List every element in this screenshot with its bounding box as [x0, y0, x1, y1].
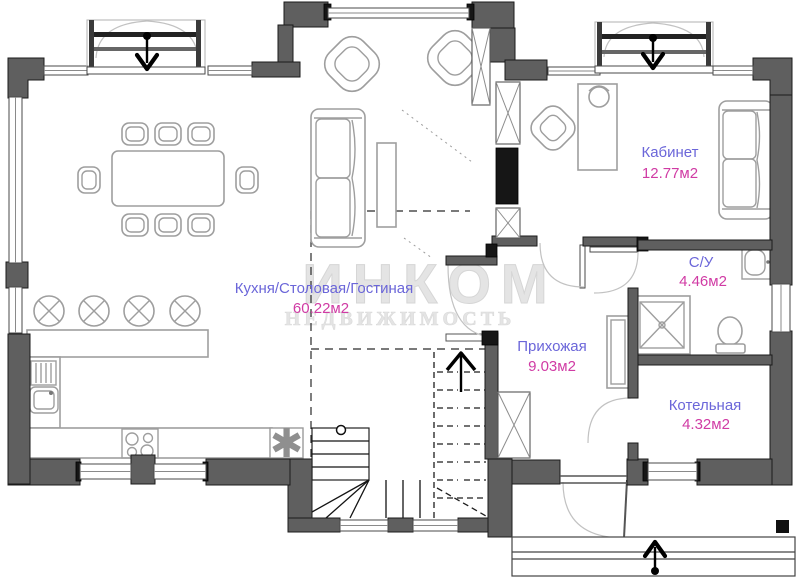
bathroom-door-arc	[594, 252, 638, 293]
terrace-top-right	[595, 22, 713, 73]
dining-table	[112, 151, 224, 206]
room-area-kitchen: 60.22м2	[293, 300, 349, 317]
room-label-boiler: Котельная	[669, 397, 742, 414]
office-chair	[589, 86, 609, 107]
console-table	[377, 143, 396, 227]
boiler-door-arc	[588, 398, 631, 443]
toilet	[716, 317, 745, 353]
bathroom-door-leaf	[590, 247, 638, 252]
entrance-door-arc	[563, 482, 624, 538]
room-area-bathroom: 4.46м2	[679, 273, 727, 290]
floor-plan-drawing: ИНКОМ НЕДВИЖИМОСТЬ	[0, 0, 800, 578]
armchair	[526, 101, 580, 155]
living-furniture	[311, 24, 489, 247]
entrance-threshold	[560, 476, 627, 483]
shower	[634, 296, 690, 354]
staircase	[312, 334, 486, 518]
corner-pillar-top-left	[8, 58, 44, 98]
sofa	[311, 109, 365, 247]
room-area-hallway: 9.03м2	[528, 358, 576, 375]
corner-pillar-top-right	[753, 58, 792, 97]
fireplace	[496, 148, 518, 204]
floor-plan-page: ИНКОМ НЕДВИЖИМОСТЬ	[0, 0, 800, 578]
terrace-top-left	[87, 20, 205, 74]
room-label-kitchen: Кухня/Столовая/Гостиная	[235, 280, 414, 297]
bar-counter	[27, 330, 208, 357]
room-label-bathroom: С/У	[689, 254, 714, 271]
room-label-office: Кабинет	[641, 144, 698, 161]
kitchen-furniture: ✱	[27, 296, 303, 467]
stair-newel	[337, 426, 346, 435]
armchair	[318, 30, 386, 98]
dining-set	[78, 123, 258, 236]
kitchen-counter-left	[27, 357, 60, 428]
office-door-leaf	[580, 245, 585, 288]
bar-stools	[34, 296, 200, 326]
room-area-boiler: 4.32м2	[682, 416, 730, 433]
room-label-hallway: Прихожая	[517, 338, 587, 355]
stair-bay-wall	[485, 333, 498, 459]
downspout-marker	[776, 520, 789, 533]
washbasin	[742, 246, 773, 279]
hallway-wardrobe	[607, 316, 629, 388]
office-sofa	[719, 101, 773, 219]
upper-flight-dashed	[437, 372, 486, 516]
kitchen-counter-bottom	[27, 428, 272, 458]
entrance-porch	[512, 520, 795, 576]
entrance-door-leaf	[624, 480, 627, 538]
room-area-office: 12.77м2	[642, 165, 698, 182]
